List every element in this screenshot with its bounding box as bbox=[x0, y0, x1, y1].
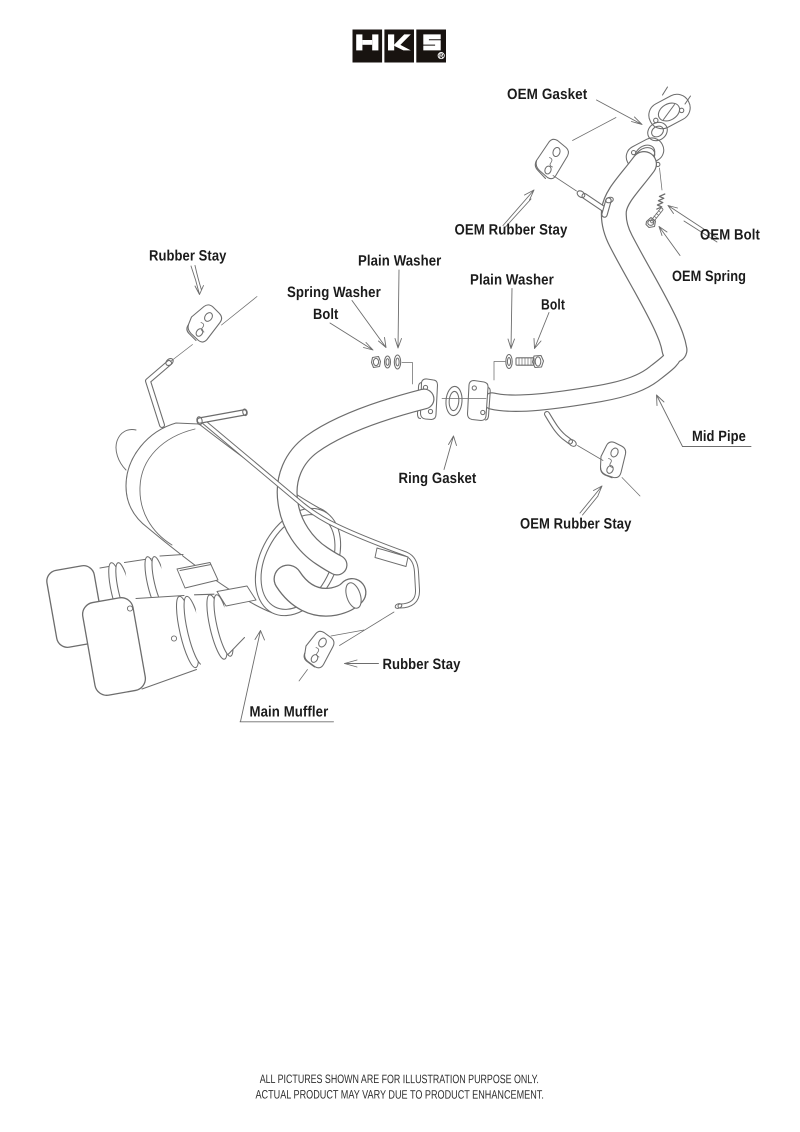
svg-text:Plain Washer: Plain Washer bbox=[470, 272, 554, 289]
svg-text:Main Muffler: Main Muffler bbox=[249, 703, 328, 720]
svg-text:Spring Washer: Spring Washer bbox=[287, 283, 381, 300]
svg-text:Bolt: Bolt bbox=[541, 296, 565, 312]
svg-text:ALL PICTURES SHOWN ARE FOR ILL: ALL PICTURES SHOWN ARE FOR ILLUSTRATION … bbox=[260, 1073, 539, 1087]
svg-text:OEM Gasket: OEM Gasket bbox=[507, 86, 587, 103]
svg-text:R: R bbox=[439, 54, 444, 60]
svg-text:Mid Pipe: Mid Pipe bbox=[692, 427, 746, 444]
svg-text:Rubber Stay: Rubber Stay bbox=[149, 247, 227, 264]
svg-text:OEM Spring: OEM Spring bbox=[672, 267, 746, 284]
svg-text:Rubber Stay: Rubber Stay bbox=[382, 655, 460, 672]
svg-text:Ring Gasket: Ring Gasket bbox=[398, 469, 476, 486]
svg-text:OEM Rubber Stay: OEM Rubber Stay bbox=[520, 515, 632, 532]
svg-text:ACTUAL PRODUCT MAY VARY DUE TO: ACTUAL PRODUCT MAY VARY DUE TO PRODUCT E… bbox=[255, 1088, 543, 1102]
svg-text:OEM Rubber Stay: OEM Rubber Stay bbox=[454, 221, 567, 238]
svg-text:Bolt: Bolt bbox=[313, 305, 339, 322]
svg-text:OEM Bolt: OEM Bolt bbox=[700, 226, 760, 243]
svg-text:Plain Washer: Plain Washer bbox=[358, 252, 442, 269]
